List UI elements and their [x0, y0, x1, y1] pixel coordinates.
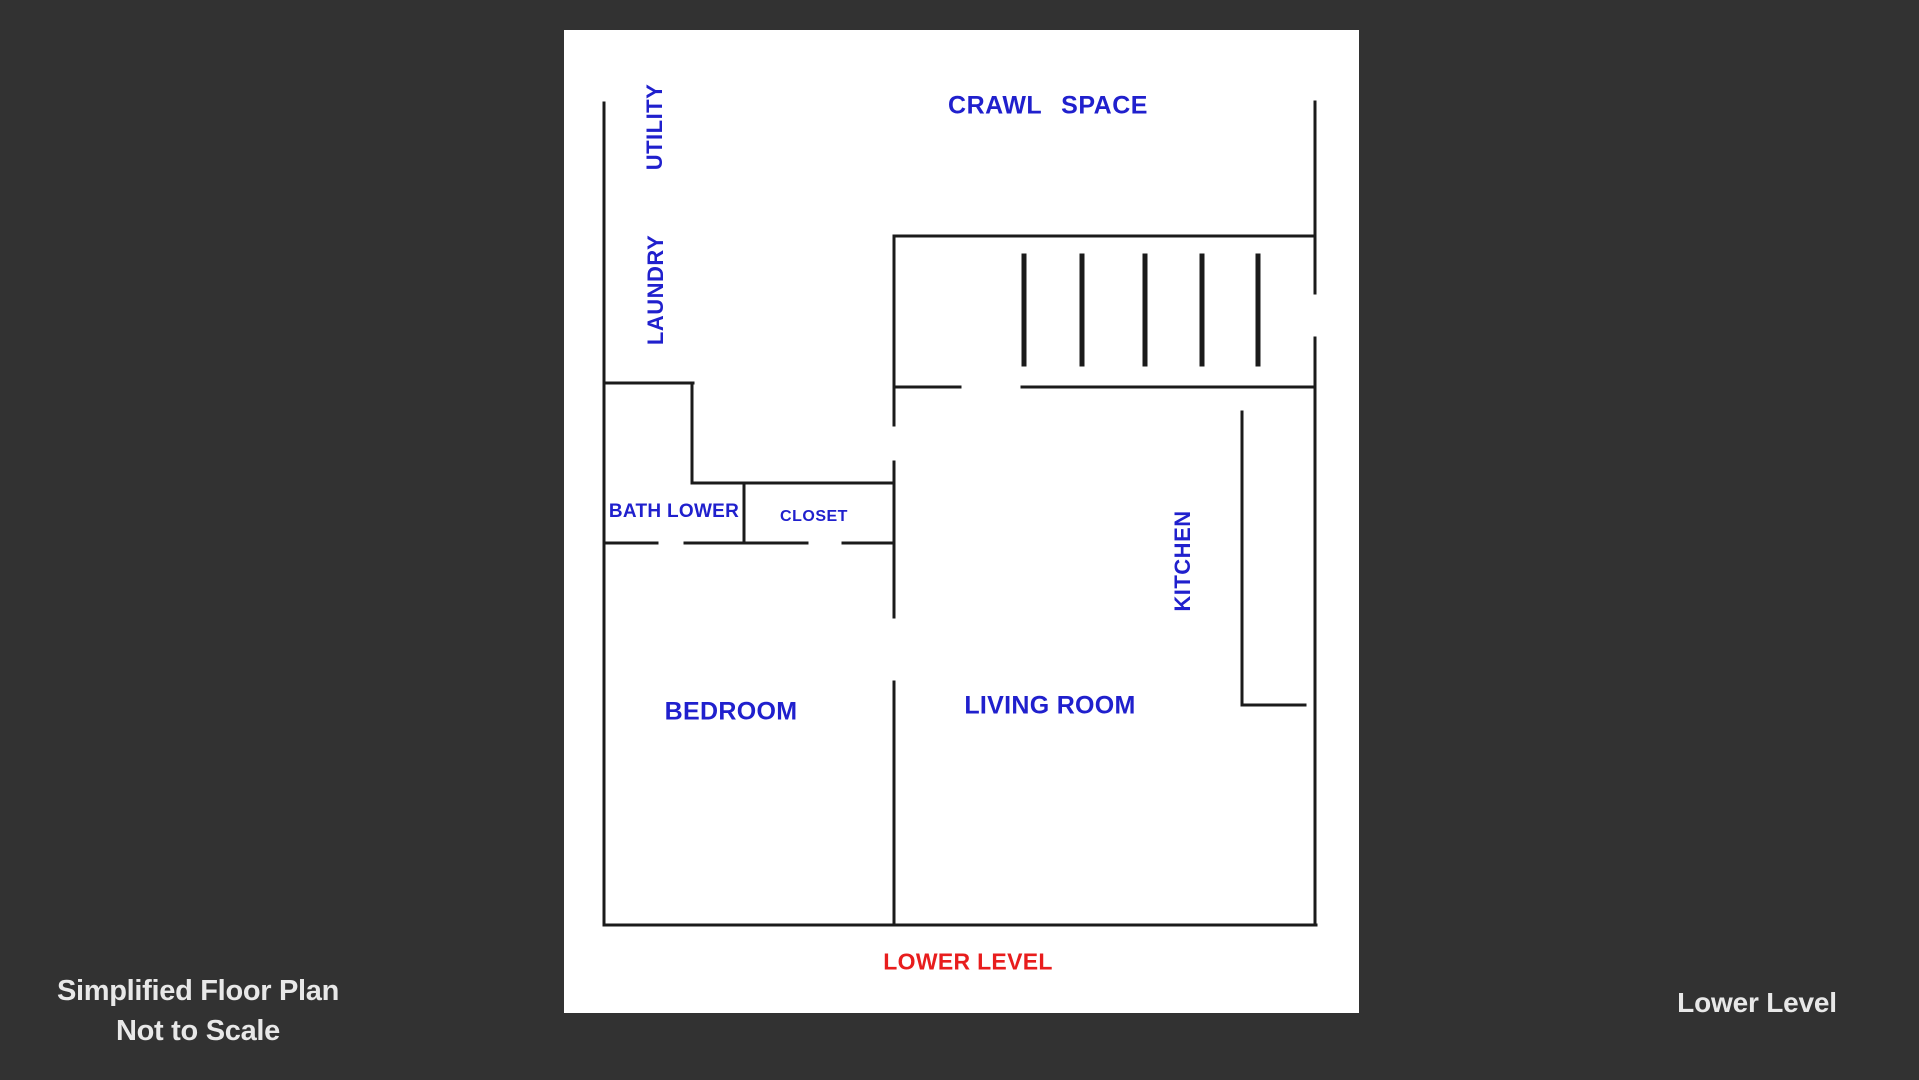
- room-label-laundry: LAUNDRY: [643, 235, 669, 345]
- room-label-living-room: LIVING ROOM: [964, 692, 1135, 721]
- plan-caption-lower-level: LOWER LEVEL: [883, 949, 1052, 976]
- room-label-kitchen: KITCHEN: [1170, 510, 1196, 611]
- slide-background: CRAWL SPACE UTILITY LAUNDRY BATH LOWER C…: [0, 0, 1919, 1080]
- floor-plan-walls: [0, 0, 1919, 1080]
- room-label-bedroom: BEDROOM: [665, 698, 798, 727]
- room-label-utility: UTILITY: [642, 84, 668, 171]
- room-label-crawl-space: CRAWL SPACE: [948, 92, 1148, 121]
- footer-level-caption: Lower Level: [1677, 987, 1837, 1019]
- footer-note: Simplified Floor Plan Not to Scale: [57, 971, 339, 1051]
- room-label-closet: CLOSET: [780, 508, 848, 526]
- footer-note-line2: Not to Scale: [57, 1011, 339, 1051]
- room-label-bath-lower: BATH LOWER: [609, 501, 739, 523]
- footer-note-line1: Simplified Floor Plan: [57, 971, 339, 1011]
